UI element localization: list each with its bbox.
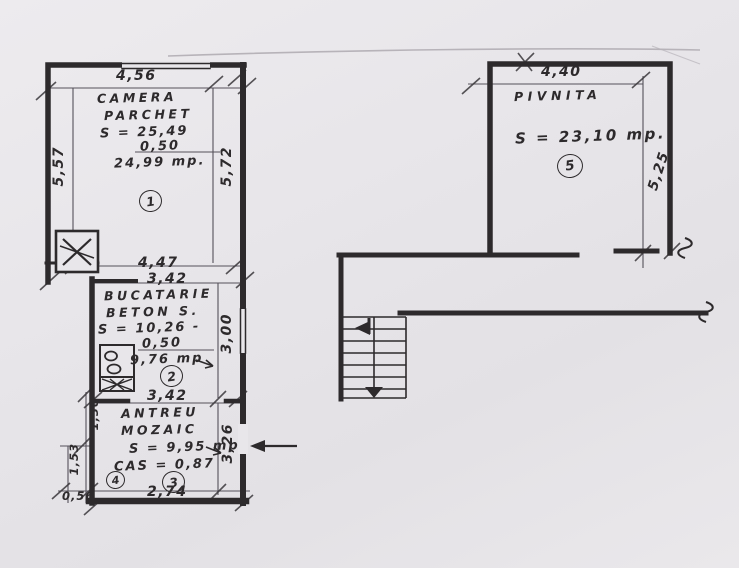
- dim-bucatarie-top-inner: 3,42: [147, 272, 188, 286]
- camera-deduction: 0,50: [140, 139, 181, 153]
- wall-break-squiggle-icons: [678, 238, 713, 322]
- pivnita-name: PIVNITA: [514, 89, 602, 104]
- antreu-name-line2: MOZAIC: [121, 423, 198, 438]
- antreu-coefficient: CAS = 0,87: [114, 457, 215, 474]
- camera-area-net: 24,99 mp.: [114, 154, 206, 170]
- masonry-stove-icon: [56, 231, 98, 272]
- dim-bucatarie-top-outer: 4,47: [138, 256, 179, 270]
- dim-bucatarie-bottom: 3,42: [147, 389, 188, 403]
- bucatarie-name-line2: BETON S.: [106, 305, 200, 320]
- dim-antreu-right: 3,26: [221, 423, 235, 464]
- dim-camera-right: 5,72: [220, 146, 234, 187]
- right-unit-walls: [339, 64, 706, 399]
- floor-plan-scan: 4,56 5,57 5,72 CAMERA PARCHET S = 25,49 …: [0, 0, 739, 568]
- entrance-arrow-icon: [250, 440, 297, 452]
- bucatarie-deduction: 0,50: [142, 336, 183, 350]
- dim-camera-left: 5,57: [52, 146, 66, 187]
- bucatarie-area-gross: S = 10,26 -: [98, 320, 201, 337]
- dim-antreu-bottom: 2,74: [147, 485, 188, 499]
- stairs-icon: [343, 317, 406, 398]
- camera-name-line2: PARCHET: [104, 108, 193, 123]
- dim-antreu-bottom-left: 0,56: [62, 491, 94, 503]
- camera-name-line1: CAMERA: [97, 91, 177, 106]
- bucatarie-name-line1: BUCATARIE: [104, 288, 213, 303]
- cooker-icon: [100, 345, 134, 391]
- dim-bucatarie-right: 3,00: [220, 313, 234, 354]
- dim-pivnita-top: 4,40: [541, 65, 582, 79]
- dim-antreu-left-lower: 1,53: [69, 443, 81, 475]
- dim-camera-top: 4,56: [116, 69, 157, 83]
- dim-antreu-left-upper: 1,30: [89, 398, 101, 430]
- antreu-name-line1: ANTREU: [121, 406, 199, 421]
